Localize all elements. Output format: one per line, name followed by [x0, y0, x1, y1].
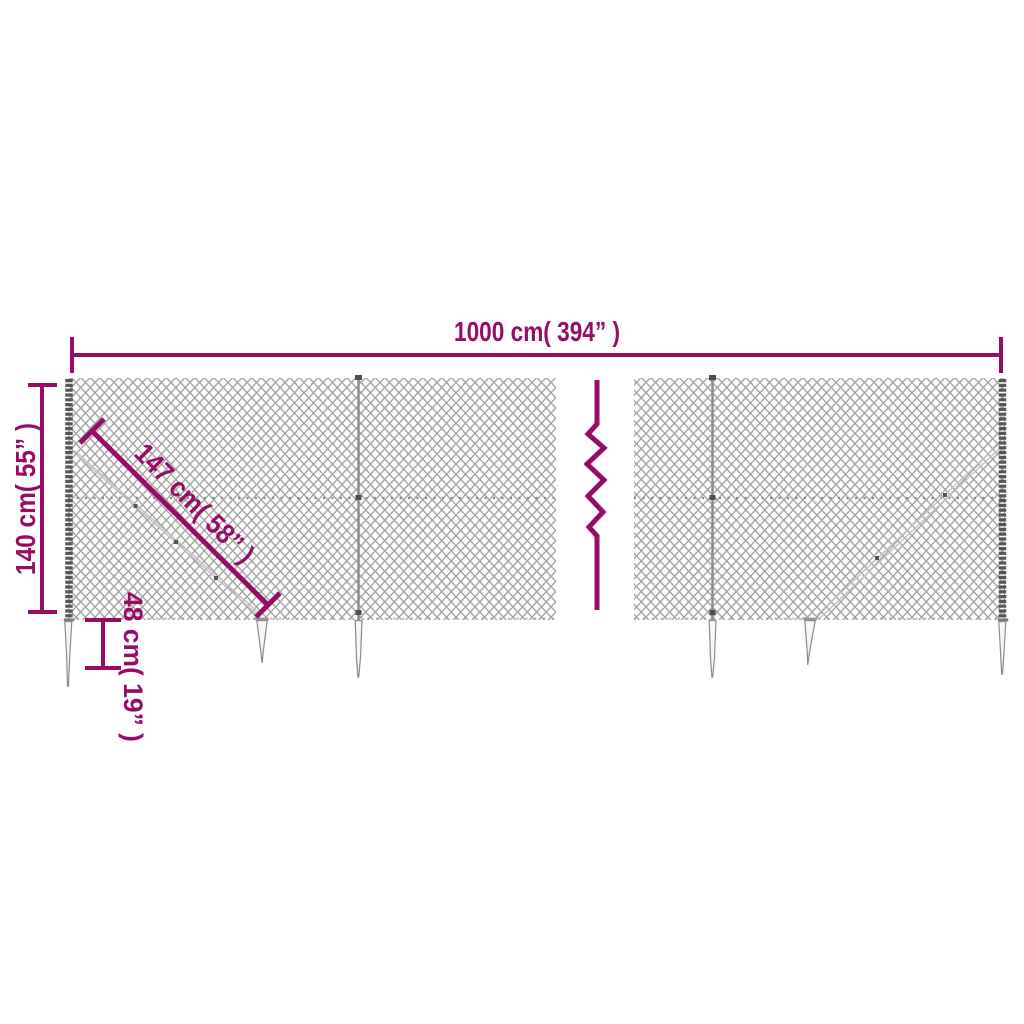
dimension-total-width: 1000 cm( 394” ) — [70, 316, 1003, 373]
spike-mid-right — [709, 621, 716, 678]
post-clamp — [356, 495, 362, 500]
fence-left-panel — [68, 375, 556, 620]
dimension-end-tick — [85, 666, 121, 670]
brace-clip — [174, 540, 178, 544]
dimension-label-spike: 48 cm( 19” ) — [118, 592, 148, 742]
dimension-label-total-width: 1000 cm( 394” ) — [454, 316, 620, 347]
length-break-symbol — [587, 380, 604, 610]
post-cap — [355, 375, 362, 380]
fence-right-panel — [634, 375, 1005, 620]
spike-anchor-right — [801, 617, 817, 665]
fence-diagram-canvas: 1000 cm( 394” ) 140 cm( 55” ) 147 cm( 58… — [0, 0, 1024, 1024]
spike-mid-left — [355, 621, 362, 678]
post-clamp — [356, 610, 362, 615]
spike-end-left — [64, 619, 74, 687]
brace-clip — [214, 576, 218, 580]
chain-link-mesh-left — [68, 378, 556, 620]
ground-spikes — [64, 617, 1008, 686]
dimension-end-tick — [999, 337, 1003, 373]
dimension-height: 140 cm( 55” ) — [10, 383, 57, 614]
brace-clip — [943, 493, 947, 497]
dimension-end-tick — [70, 337, 74, 373]
spike-anchor-left — [255, 618, 269, 664]
brace-clip — [875, 556, 879, 560]
dimension-label-height: 140 cm( 55” ) — [10, 423, 41, 575]
post-cap — [709, 375, 716, 380]
post-clamp — [710, 495, 716, 500]
brace-clip — [134, 504, 138, 508]
post-clamp — [710, 610, 716, 615]
spike-end-right — [998, 619, 1008, 675]
dimension-end-tick — [28, 383, 57, 387]
dimension-end-tick — [28, 610, 57, 614]
dimension-end-tick — [85, 618, 121, 622]
product-dimension-diagram: 1000 cm( 394” ) 140 cm( 55” ) 147 cm( 58… — [0, 0, 1024, 1024]
